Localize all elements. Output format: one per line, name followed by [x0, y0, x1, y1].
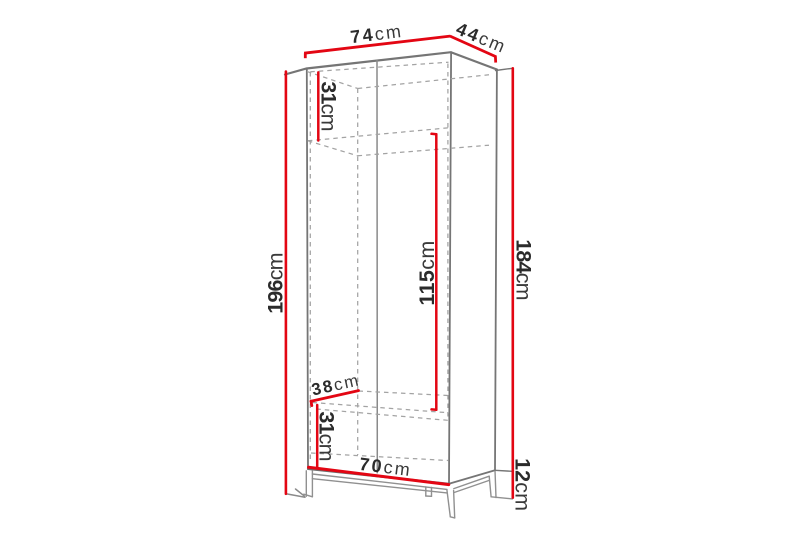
svg-text:196cm: 196cm: [264, 253, 288, 314]
svg-text:31cm: 31cm: [315, 411, 339, 460]
svg-text:115cm: 115cm: [415, 240, 439, 305]
svg-text:184cm: 184cm: [511, 239, 535, 300]
svg-text:12cm: 12cm: [511, 458, 535, 511]
svg-text:31cm: 31cm: [316, 81, 340, 130]
